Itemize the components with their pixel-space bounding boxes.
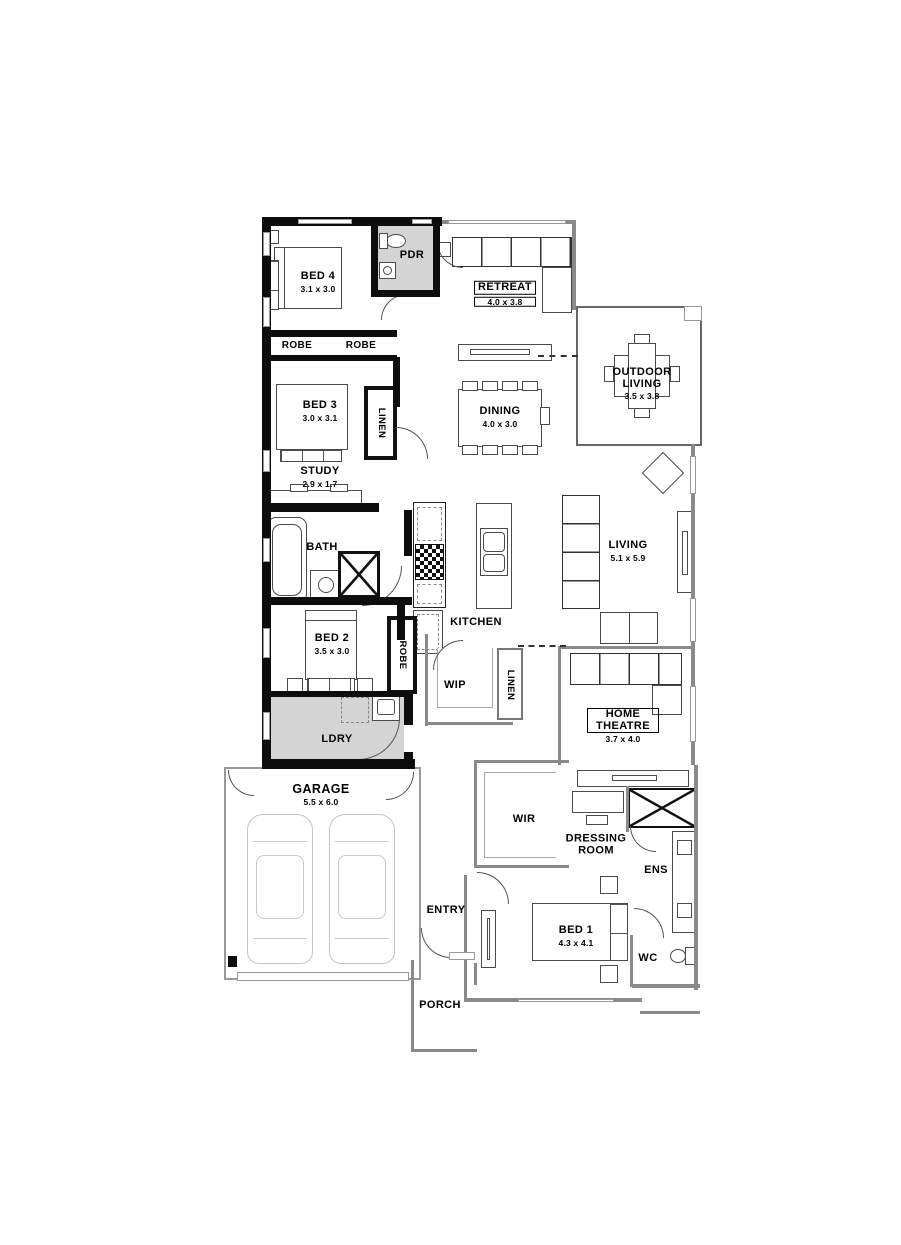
room-label-robe: ROBE — [397, 640, 407, 669]
room-label-kitchen: KITCHEN — [450, 617, 502, 629]
room-label-porch: PORCH — [419, 1000, 461, 1012]
bed-head-icon — [610, 903, 628, 961]
wall — [262, 503, 379, 512]
sofa-icon — [570, 653, 682, 685]
wall-notch — [684, 306, 702, 321]
cabinet-dashed — [417, 614, 439, 650]
bedside-table-icon — [357, 678, 373, 692]
toilet-tank — [379, 233, 388, 249]
armchair-icon — [642, 452, 684, 494]
room-label-living: LIVING5.1 x 5.9 — [608, 540, 647, 562]
room-label-robe: ROBE — [282, 341, 313, 352]
chair-icon — [522, 381, 538, 391]
ottoman-icon — [600, 612, 658, 644]
door-arc — [381, 294, 407, 320]
meter-box-icon — [228, 956, 237, 967]
wall — [558, 646, 561, 765]
sofa-icon — [452, 237, 572, 267]
wall — [694, 765, 698, 990]
bedside-table-icon — [600, 965, 618, 983]
wall — [371, 290, 440, 297]
chair-icon — [462, 445, 478, 455]
chair-icon — [540, 407, 550, 425]
laundry-tub-bowl — [377, 699, 395, 715]
toilet-icon — [670, 949, 686, 963]
dressing-table-icon — [572, 791, 624, 813]
room-label-wc: WC — [638, 953, 657, 965]
window — [298, 219, 352, 224]
window — [263, 628, 270, 658]
room-label-wip: WIP — [444, 680, 466, 692]
mirror-line — [487, 918, 490, 960]
bedside-table-icon — [287, 678, 303, 692]
wall — [404, 510, 412, 556]
wall — [404, 752, 413, 769]
wall — [393, 357, 400, 407]
window — [412, 219, 432, 224]
window — [518, 999, 614, 1002]
window — [263, 538, 270, 562]
chair-icon — [482, 445, 498, 455]
wall — [262, 355, 397, 361]
window — [690, 686, 696, 742]
room-label-pdr: PDR — [400, 250, 424, 262]
sliding-door — [538, 355, 578, 357]
chair-icon — [502, 445, 518, 455]
sofa-corner-icon — [542, 267, 572, 313]
room-label-bed4: BED 43.1 x 3.0 — [301, 271, 336, 293]
room-label-bed2: BED 23.5 x 3.0 — [315, 633, 350, 655]
wall — [425, 634, 428, 726]
room-label-entry: ENTRY — [427, 905, 466, 917]
window — [263, 297, 270, 327]
floor-plan: BED 43.1 x 3.0 PDR RETREAT 4.0 x 3.8 OUT… — [0, 0, 901, 1245]
cabinet-dashed — [417, 584, 442, 604]
wall — [474, 760, 477, 868]
wall — [262, 597, 412, 605]
tv-icon — [682, 531, 688, 575]
wall — [433, 217, 440, 297]
entry-threshold — [449, 952, 475, 960]
chair-icon — [482, 381, 498, 391]
tv-unit-shelf — [470, 349, 530, 355]
window — [690, 456, 696, 494]
chair-icon — [522, 445, 538, 455]
chair-icon — [634, 334, 650, 344]
chair-icon — [634, 408, 650, 418]
room-label-study: STUDY2.9 x 1.7 — [300, 466, 339, 488]
stool-icon — [586, 815, 608, 825]
window — [263, 450, 270, 472]
basin-icon — [677, 903, 692, 918]
wall — [626, 786, 629, 832]
wall — [404, 691, 413, 725]
room-label-garage: GARAGE5.5 x 6.0 — [292, 783, 349, 807]
drawers-icon — [307, 678, 355, 692]
wall — [640, 1011, 700, 1014]
entry-door-arc — [421, 928, 451, 958]
garage-door — [237, 972, 409, 981]
room-label-dining: DINING4.0 x 3.0 — [480, 406, 521, 428]
room-label-robe: ROBE — [346, 341, 377, 352]
cooktop-icon — [415, 544, 444, 580]
room-label-bed1: BED 14.3 x 4.1 — [559, 925, 594, 947]
sink-bowl — [483, 554, 505, 572]
cabinet-dashed — [417, 507, 442, 541]
wall — [262, 330, 397, 337]
wall — [474, 760, 569, 763]
hall-cabinet-tray — [612, 775, 657, 781]
wall — [632, 984, 700, 988]
room-label-home-theatre: HOME THEATRE 3.7 x 4.0 — [587, 708, 659, 744]
bedside-table-icon — [600, 876, 618, 894]
wall — [425, 722, 513, 725]
sink-bowl — [483, 532, 505, 552]
wall — [630, 935, 633, 987]
bed-pillow — [305, 610, 357, 621]
room-label-linen: LINEN — [376, 408, 386, 439]
chair-icon — [462, 381, 478, 391]
window — [690, 598, 696, 642]
wall — [572, 220, 576, 310]
wall — [371, 217, 378, 297]
wall — [397, 604, 405, 640]
basin-bowl — [383, 266, 392, 275]
toilet-icon — [386, 234, 406, 248]
wall — [474, 865, 569, 868]
chair-icon — [502, 381, 518, 391]
door-arc — [477, 872, 509, 904]
room-label-wir: WIR — [513, 814, 536, 826]
window — [263, 712, 270, 740]
shower-icon — [628, 788, 696, 828]
room-label-linen: LINEN — [505, 670, 515, 701]
door-arc — [437, 242, 463, 268]
room-label-ldry: LDRY — [321, 734, 352, 746]
basin-icon — [677, 840, 692, 855]
wall — [411, 960, 414, 1052]
wall — [474, 963, 477, 985]
room-label-outdoor-living: OUTDOOR LIVING3.5 x 3.8 — [604, 367, 680, 401]
room-label-bath: BATH — [306, 542, 337, 554]
room-label-bed3: BED 33.0 x 3.1 — [303, 400, 338, 422]
wall — [411, 1049, 477, 1052]
room-label-ens: ENS — [644, 865, 668, 877]
room-label-dressing-room: DRESSING ROOM — [558, 833, 634, 856]
room-label-retreat: RETREAT 4.0 x 3.8 — [474, 281, 536, 307]
drawers-icon — [280, 450, 342, 462]
door-arc — [396, 427, 428, 459]
wall — [262, 759, 415, 769]
bathtub-inner — [272, 524, 302, 596]
wall — [262, 691, 412, 697]
basin-icon — [318, 577, 334, 593]
window — [448, 220, 566, 224]
sofa-icon — [562, 495, 600, 609]
wall — [464, 875, 467, 1002]
wall — [558, 646, 695, 649]
door-arc — [634, 908, 664, 938]
sliding-door — [518, 645, 566, 647]
window — [263, 232, 270, 256]
